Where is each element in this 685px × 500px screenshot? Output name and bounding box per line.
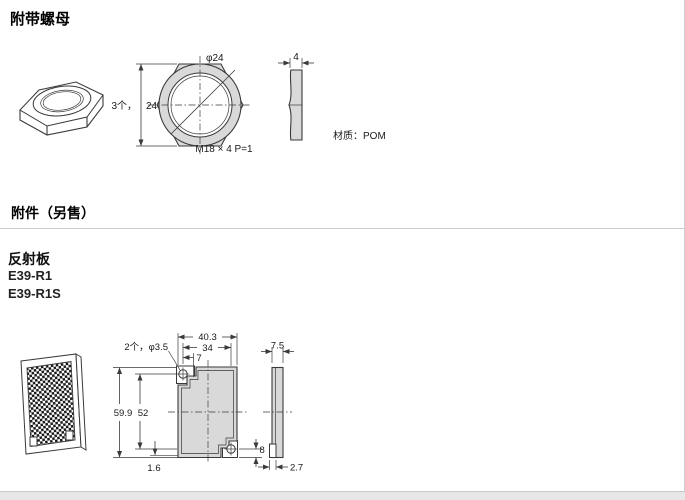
nut-side-view: 4 材质：POM <box>278 52 386 142</box>
reflector-tab-dim: 2.7 <box>290 463 303 474</box>
nut-across-flats-dim: 24 <box>146 101 158 112</box>
reflector-isometric-view <box>21 354 86 454</box>
nut-diameter-dim: φ24 <box>206 53 224 64</box>
reflector-width-dim: 40.3 <box>198 332 217 343</box>
nut-thread-label: M18 × 4 P=1 <box>195 144 253 155</box>
nut-front-view: 3个， 24 φ24 M18 × 4 P=1 <box>111 53 253 155</box>
technical-drawing-canvas: 3个， 24 φ24 M18 × 4 P=1 4 材质：POM <box>0 0 685 500</box>
nut-qty-label: 3个， <box>111 100 137 112</box>
reflector-hole-pitch-v-dim: 52 <box>138 408 149 419</box>
reflector-front-view: 40.3 34 7 2个，φ3.5 59.9 52 <box>113 332 265 474</box>
reflector-hole-bottom-offset-dim: 8 <box>260 445 265 456</box>
reflector-holes-label: 2个，φ3.5 <box>124 342 168 353</box>
nut-isometric-view <box>20 82 103 135</box>
reflector-height-dim: 59.9 <box>114 408 133 419</box>
nut-thickness-dim: 4 <box>293 52 299 63</box>
reflector-lip-dim: 1.6 <box>147 463 160 474</box>
reflector-depth-dim: 7.5 <box>271 341 284 352</box>
page: 附带螺母 附件（另售） 反射板 E39-R1 E39-R1S <box>0 0 685 500</box>
next-section-bar <box>0 491 685 500</box>
reflector-hole-pitch-h-dim: 34 <box>202 343 213 354</box>
nut-material-label: 材质：POM <box>333 129 386 142</box>
reflector-hole-offset-dim: 7 <box>197 353 202 364</box>
